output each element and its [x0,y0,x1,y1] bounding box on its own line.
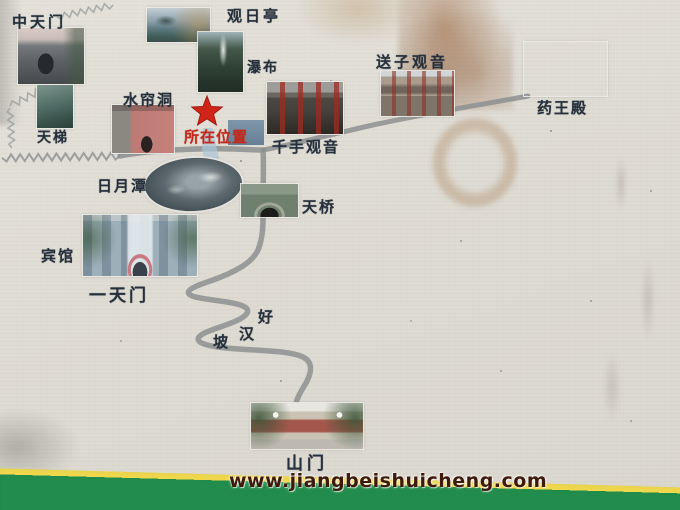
label-guanriting: 观日亭 [227,5,281,26]
photo-shanmen-gate [251,403,363,449]
label-shuiliandong: 水帘洞 [123,89,174,110]
scenic-map-sign: 中天门 观日亭 瀑布 水帘洞 天梯 送子观音 药王殿 千手观音 所在位置 日月潭… [0,0,680,510]
label-yaowangdian: 药王殿 [537,97,588,118]
photo-songziguanyin [381,71,454,116]
label-current-location: 所在位置 [184,126,248,147]
label-tianqiao: 天桥 [302,196,336,217]
label-zhongtianmen: 中天门 [12,11,66,32]
photo-yitianmen-gate [83,215,197,276]
photo-shuiliandong [112,105,174,153]
current-location-star-icon [192,96,222,125]
label-haohanpo-hao: 好 [258,306,273,327]
label-tianti: 天梯 [37,127,69,147]
zigzag-trail-horizontal [2,153,120,162]
label-haohanpo-po: 坡 [213,331,228,352]
label-binguan: 宾馆 [41,245,75,266]
website-url: www.jiangbeishuicheng.com [229,470,547,492]
photo-qianshouguanyin [267,82,343,134]
label-qianshouguanyin: 千手观音 [272,136,340,157]
label-songziguanyin: 送子观音 [376,51,448,72]
photo-waterfall [198,32,243,92]
photo-tianqiao-bridge [241,184,298,217]
label-yitianmen: 一天门 [89,281,149,306]
label-haohanpo-han: 汉 [239,323,254,344]
zigzag-trail-left-edge [7,108,14,148]
photo-tianti [37,85,73,128]
photo-zhongtianmen [18,28,84,84]
label-riyuetan: 日月潭 [97,175,148,196]
label-pubu: 瀑布 [247,57,279,77]
photo-yaowangdian [524,42,607,96]
